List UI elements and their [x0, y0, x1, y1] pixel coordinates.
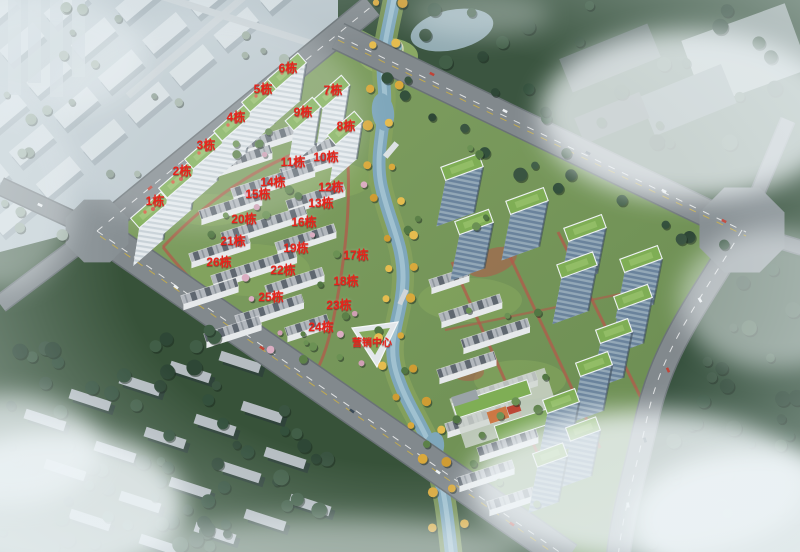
- rendered-landscape: [0, 0, 800, 552]
- aerial-masterplan-render: 1栋2栋3栋4栋5栋6栋7栋8栋9栋10栋11栋12栋13栋14栋15栋16栋1…: [0, 0, 800, 552]
- cloud: [45, 10, 365, 230]
